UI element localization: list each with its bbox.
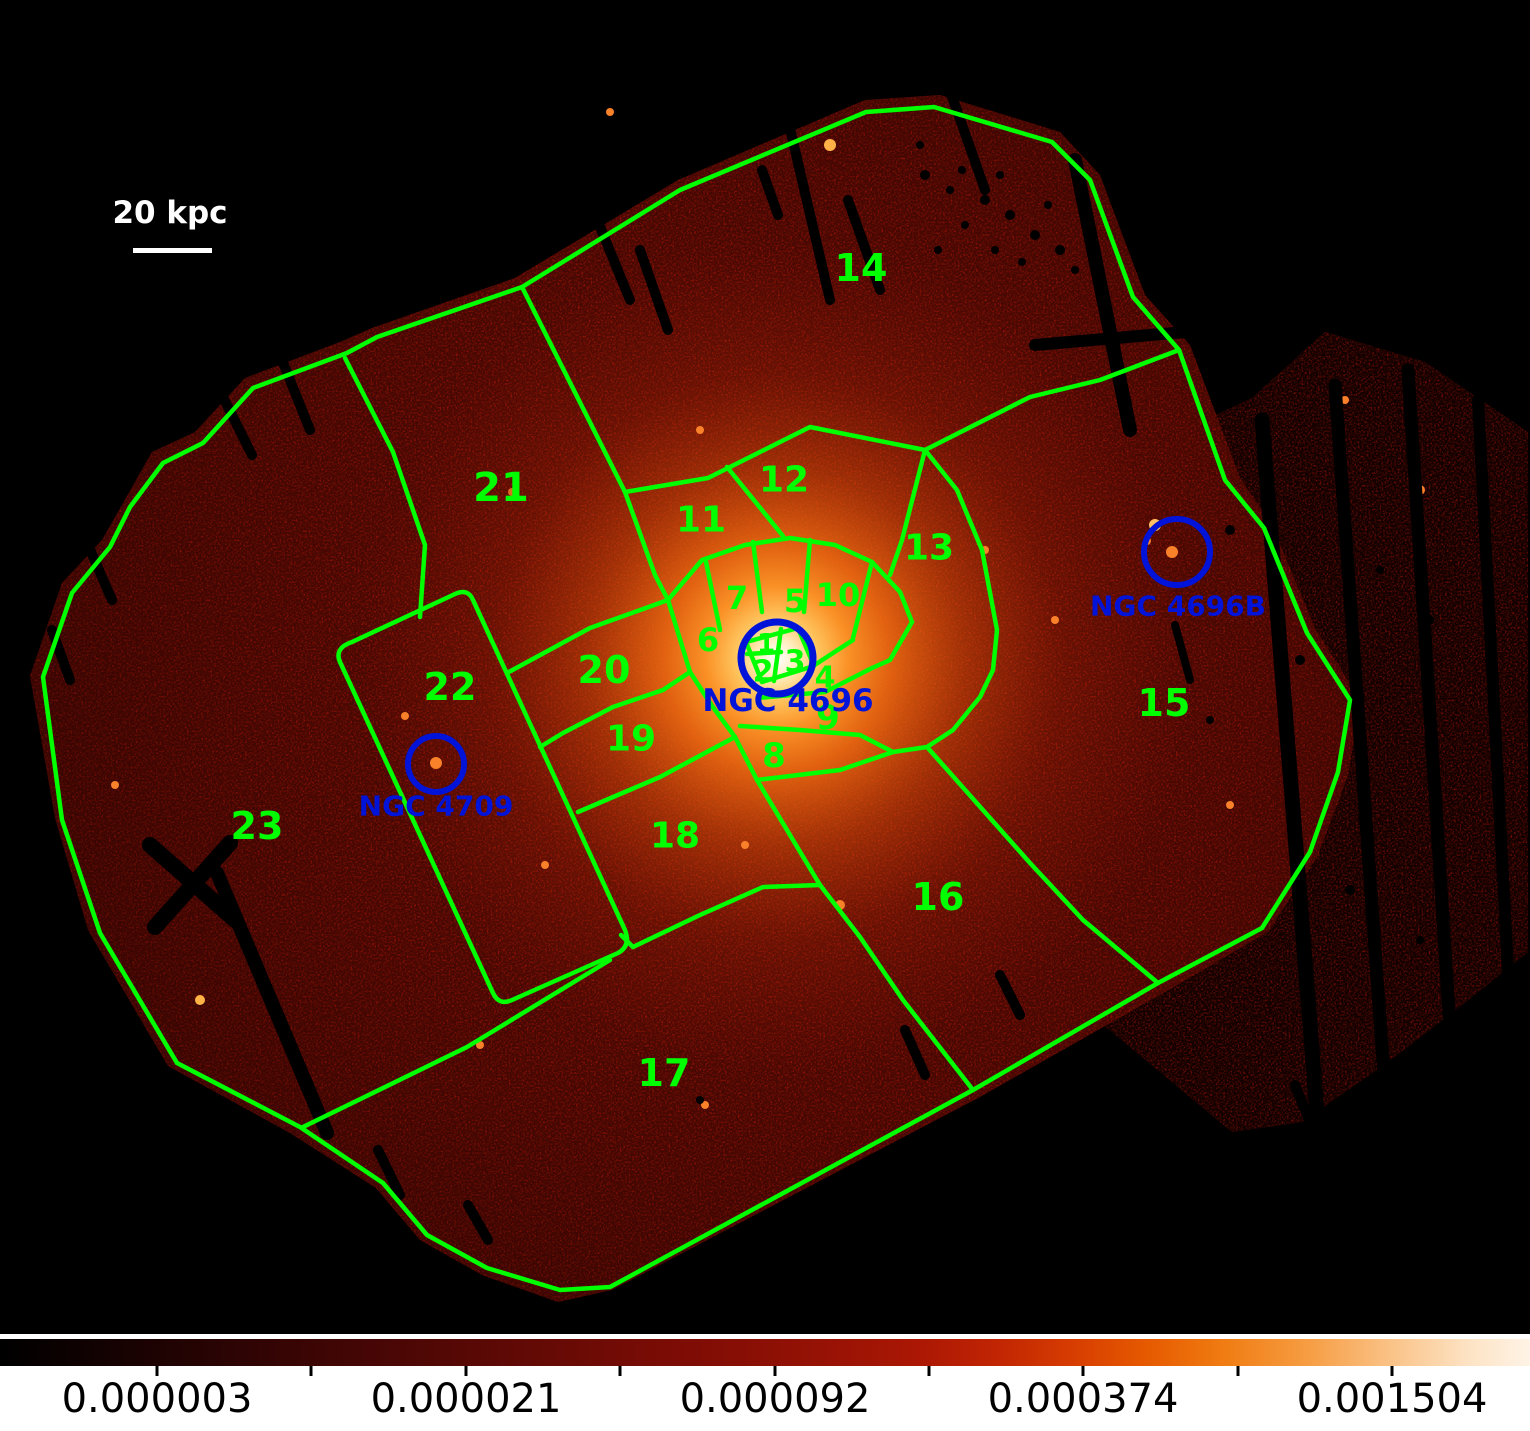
region-label-14: 14 bbox=[835, 246, 888, 290]
colorbar-tick-label-1: 0.000003 bbox=[62, 1376, 253, 1422]
region-label-19: 19 bbox=[606, 719, 656, 760]
colorbar-tick-label-2: 0.000021 bbox=[371, 1376, 562, 1422]
region-label-18: 18 bbox=[650, 816, 700, 857]
region-label-6: 6 bbox=[697, 621, 719, 659]
figure-canvas: 1 2 3 4 5 6 7 8 9 10 11 12 13 14 15 16 1… bbox=[0, 0, 1530, 1431]
region-label-12: 12 bbox=[759, 460, 809, 501]
ngc4696-label: NGC 4696 bbox=[702, 683, 873, 719]
xray-mosaic-figure: 1 2 3 4 5 6 7 8 9 10 11 12 13 14 15 16 1… bbox=[0, 0, 1530, 1431]
region-label-11: 11 bbox=[676, 500, 726, 541]
colorbar-tick-label-5: 0.001504 bbox=[1297, 1376, 1488, 1422]
scale-bar-line bbox=[133, 248, 212, 253]
scale-bar-label: 20 kpc bbox=[112, 195, 227, 231]
region-label-5: 5 bbox=[784, 582, 806, 620]
region-label-13: 13 bbox=[904, 528, 954, 569]
colorbar: 0.000003 0.000021 0.000092 0.000374 0.00… bbox=[0, 1334, 1530, 1431]
region-label-15: 15 bbox=[1138, 681, 1191, 725]
region-label-17: 17 bbox=[638, 1051, 691, 1095]
region-label-16: 16 bbox=[912, 875, 965, 919]
region-label-7: 7 bbox=[726, 579, 748, 617]
region-label-22: 22 bbox=[424, 665, 477, 709]
region-label-23: 23 bbox=[231, 804, 284, 848]
region-label-3: 3 bbox=[785, 645, 806, 680]
colorbar-gradient bbox=[0, 1339, 1530, 1366]
colorbar-tick-label-4: 0.000374 bbox=[988, 1376, 1179, 1422]
ngc4709-label: NGC 4709 bbox=[359, 790, 514, 823]
colorbar-tick-label-3: 0.000092 bbox=[680, 1376, 871, 1422]
region-label-8: 8 bbox=[762, 736, 786, 776]
ngc4696b-label: NGC 4696B bbox=[1090, 590, 1266, 623]
region-label-20: 20 bbox=[578, 648, 631, 692]
region-label-10: 10 bbox=[816, 576, 861, 614]
region-label-21: 21 bbox=[473, 465, 529, 511]
